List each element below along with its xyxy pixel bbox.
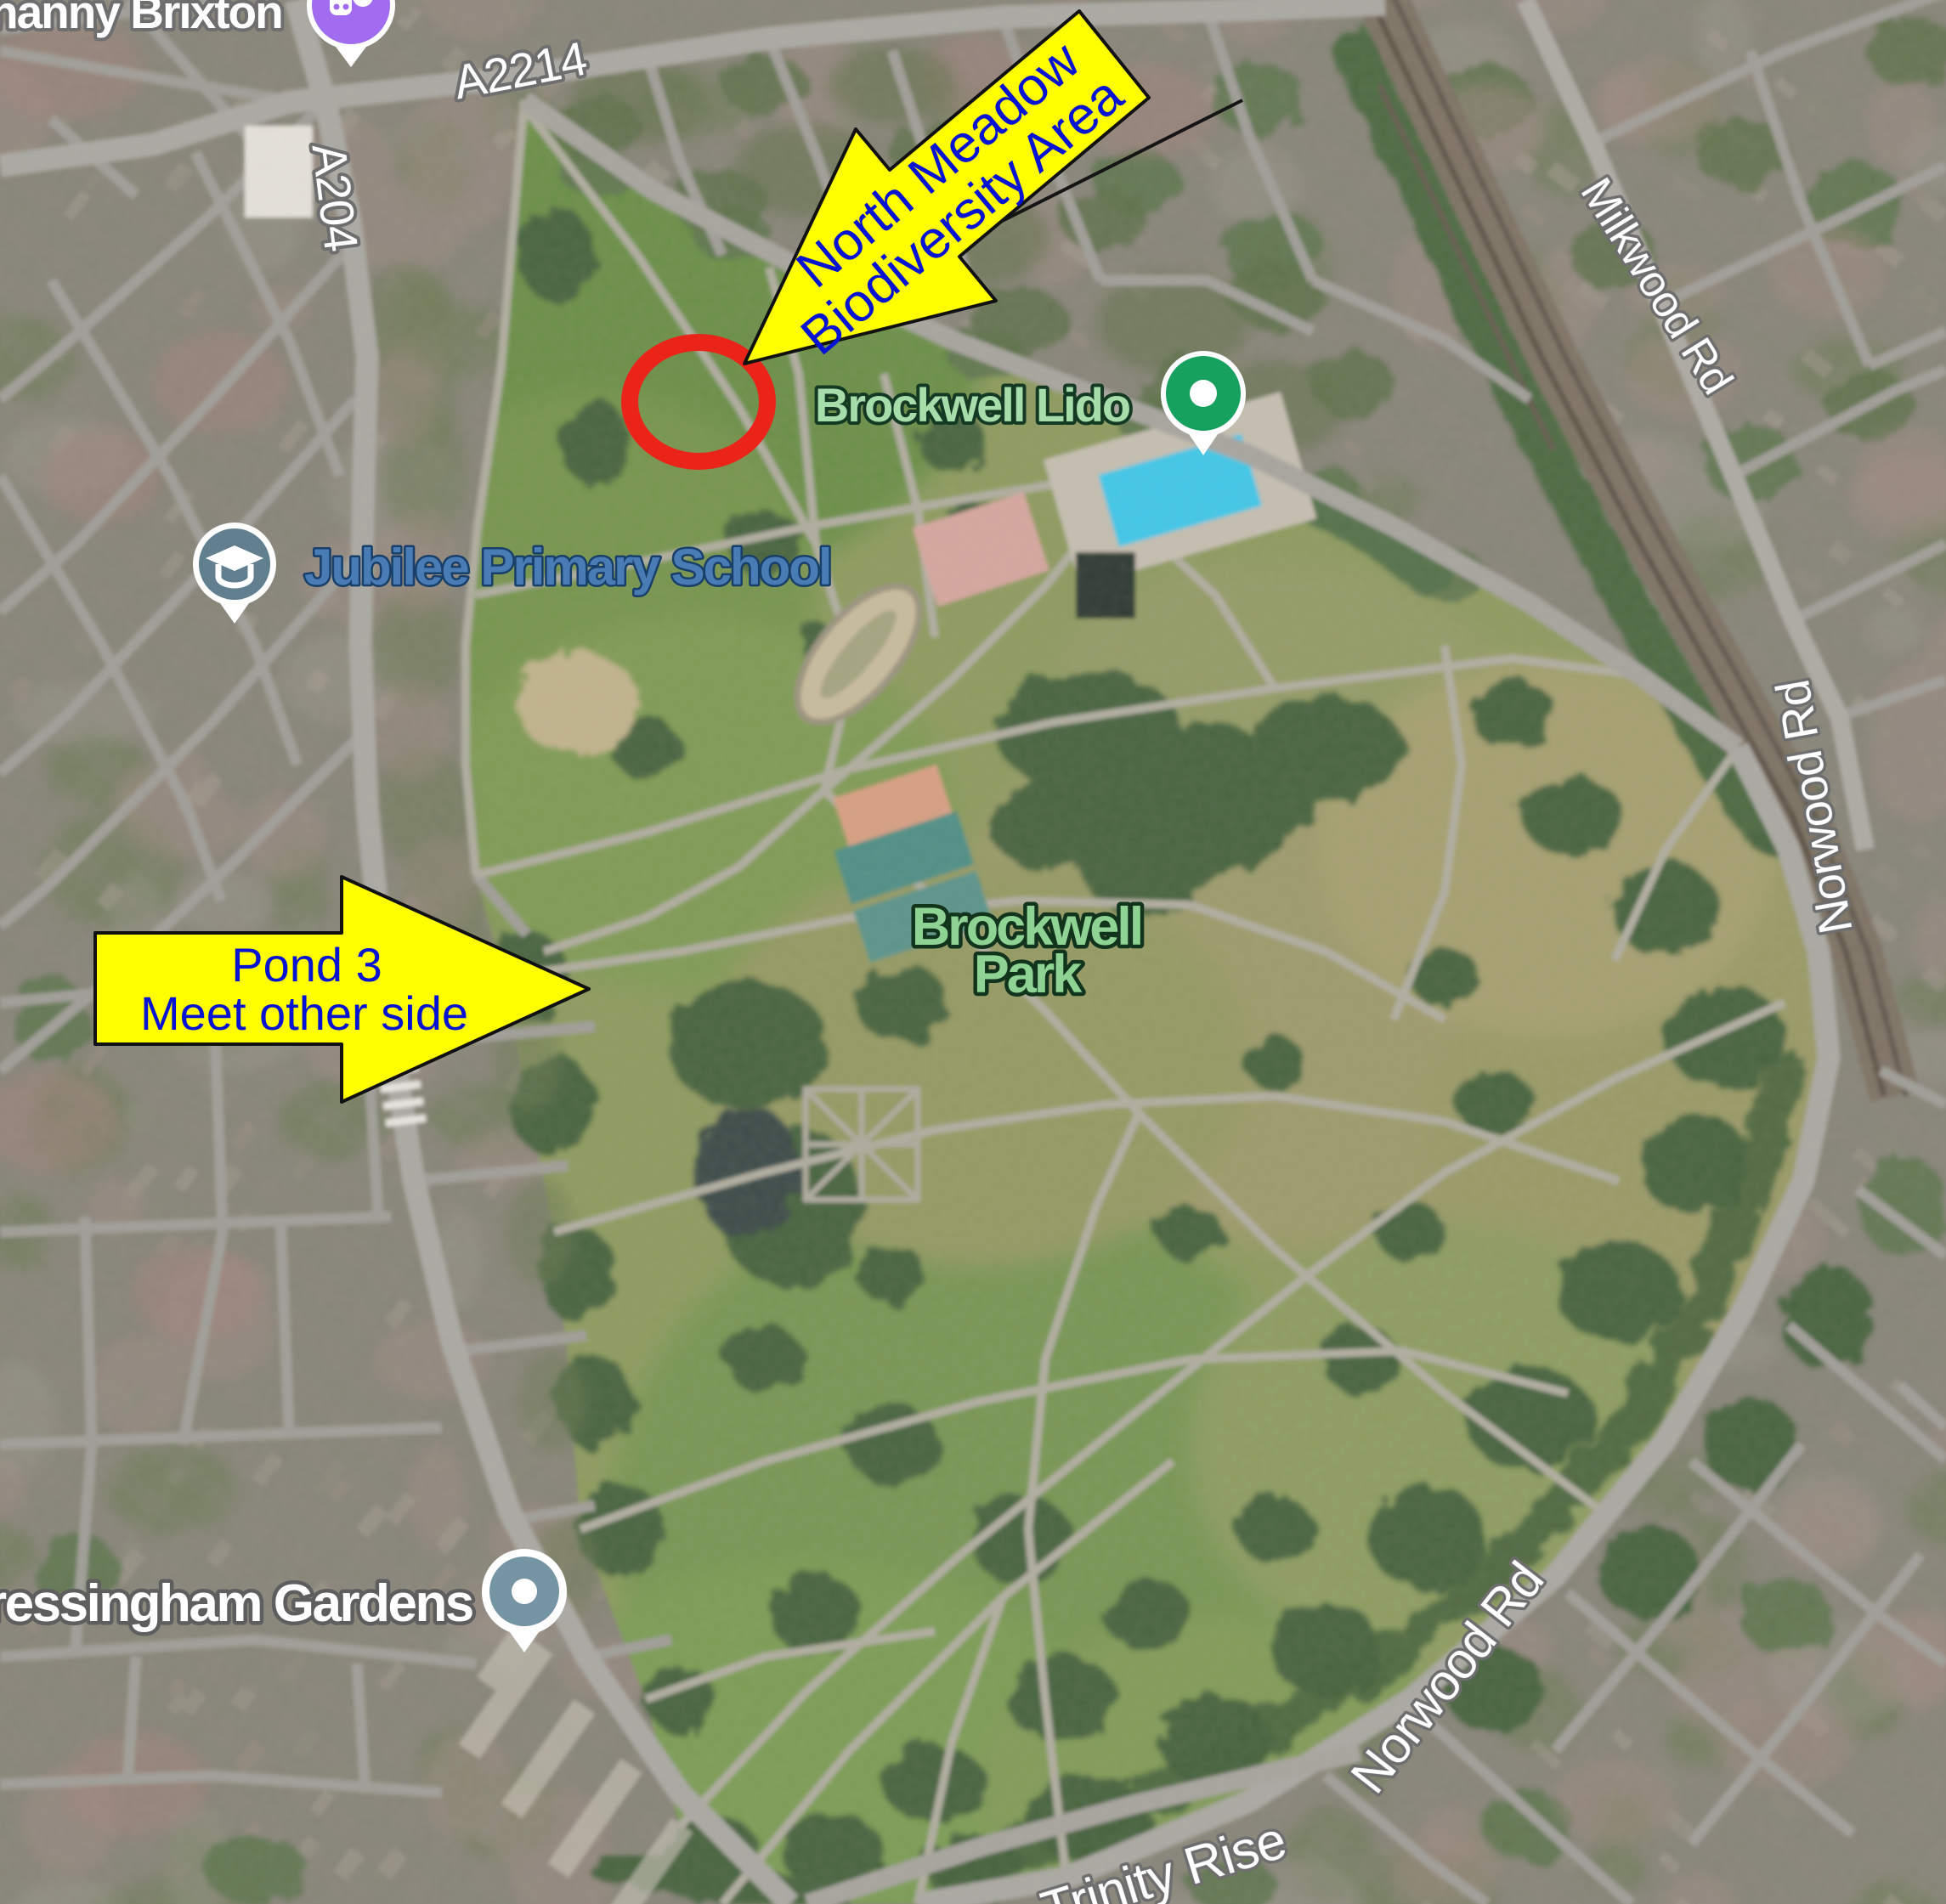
svg-text:hanny Brixton: hanny Brixton [0,0,282,38]
svg-text:ressingham Gardens: ressingham Gardens [0,1574,472,1633]
svg-text:Brockwell Lido: Brockwell Lido [815,378,1130,432]
svg-text:Park: Park [974,945,1083,1004]
svg-text:Pond 3: Pond 3 [231,938,382,992]
svg-text:Meet other side: Meet other side [140,986,468,1040]
svg-text:Jubilee Primary School: Jubilee Primary School [304,539,831,596]
